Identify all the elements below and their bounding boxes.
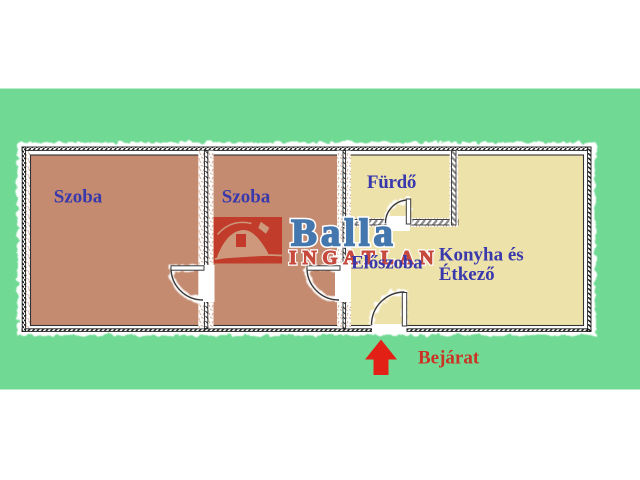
- svg-text:Szoba: Szoba: [54, 187, 103, 208]
- svg-text:Előszoba: Előszoba: [351, 253, 423, 274]
- svg-text:Konyha és: Konyha és: [439, 245, 524, 266]
- svg-text:Szoba: Szoba: [222, 187, 271, 208]
- svg-text:Fürdő: Fürdő: [367, 172, 416, 193]
- svg-text:Étkező: Étkező: [439, 263, 495, 285]
- svg-text:Bejárat: Bejárat: [418, 347, 480, 368]
